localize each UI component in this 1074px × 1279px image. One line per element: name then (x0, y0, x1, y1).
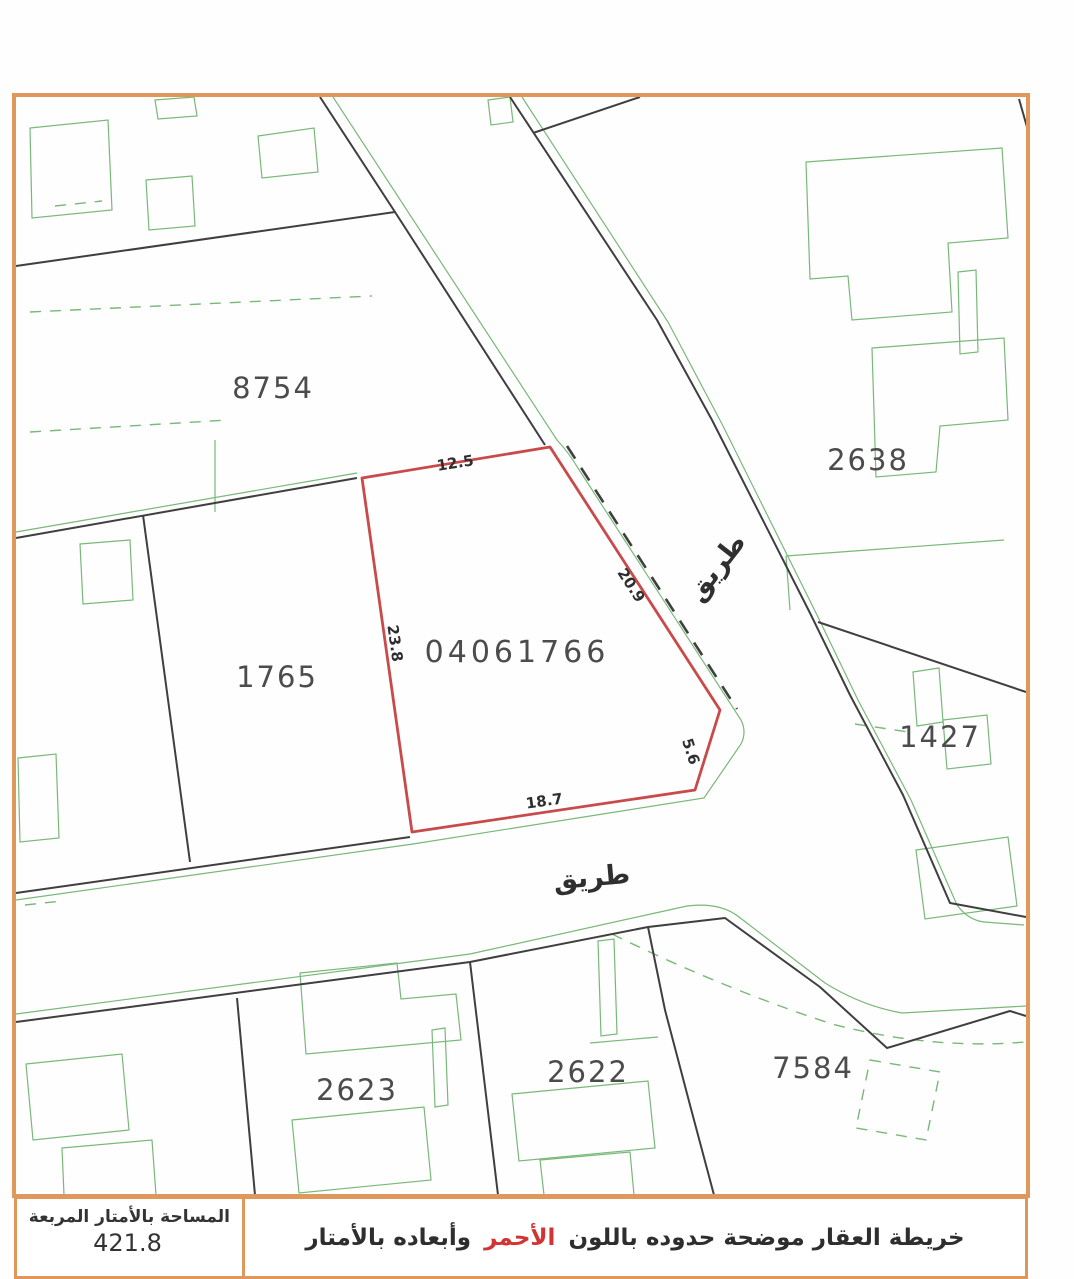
subject-parcel-number: 04061766 (425, 635, 610, 670)
area-cell: المساحة بالأمتار المربعة 421.8 (17, 1199, 245, 1276)
dashed-road-curve (612, 934, 1026, 1044)
parcel-label-2638: 2638 (827, 443, 909, 477)
dimension-labels: 12.5 20.9 23.8 5.6 18.7 (383, 451, 703, 812)
caption-cell: خريطة العقار موضحة حدوده باللون الأحمر و… (245, 1199, 1025, 1276)
block-8754-north-boundary (16, 212, 395, 266)
boundary-2622-7584 (648, 927, 714, 1195)
dimension-label-north: 12.5 (436, 451, 475, 475)
parcel-label-1427: 1427 (899, 720, 981, 754)
boundary-2623-2622 (470, 962, 498, 1195)
road-edge-south-horizontal (16, 918, 1026, 1048)
road-edge-north-horizontal (16, 837, 410, 893)
caption-text-red: الأحمر (484, 1225, 555, 1251)
road-label-horizontal: طريق (552, 859, 631, 897)
area-label: المساحة بالأمتار المربعة (25, 1207, 230, 1227)
parcel-labels: 8754 2638 1765 1427 2623 2622 7584 04061… (232, 371, 981, 1107)
road-label-vertical: طريق (681, 527, 753, 607)
parcel-label-7584: 7584 (772, 1051, 854, 1085)
map-canvas: 8754 2638 1765 1427 2623 2622 7584 04061… (0, 0, 1074, 1279)
block-1765-west-boundary (143, 515, 190, 862)
dimension-label-northeast: 20.9 (614, 565, 649, 606)
road-inner-edge-west (16, 97, 744, 900)
cadastral-map-sheet: 8754 2638 1765 1427 2623 2622 7584 04061… (0, 0, 1074, 1279)
block-2638-nw-corner (533, 97, 640, 133)
block-2623-west-boundary (237, 998, 255, 1195)
title-block: المساحة بالأمتار المربعة 421.8 خريطة الع… (14, 1196, 1028, 1279)
parcel-label-8754: 8754 (232, 371, 314, 405)
dimension-label-southeast: 5.6 (678, 736, 703, 767)
caption-text-before: خريطة العقار موضحة حدوده باللون (568, 1225, 964, 1251)
dashed-survey-lines (25, 201, 1026, 1140)
area-value: 421.8 (25, 1229, 230, 1257)
map-caption: خريطة العقار موضحة حدوده باللون الأحمر و… (305, 1225, 964, 1251)
parcel-label-2622: 2622 (547, 1055, 629, 1089)
road-edge-west (320, 97, 545, 445)
caption-text-after: وأبعاده بالأمتار (305, 1225, 471, 1251)
parcel-label-1765: 1765 (236, 660, 318, 694)
road-inner-edge-south (16, 905, 1026, 1014)
dashed-building-7584 (856, 1060, 940, 1140)
block-1765-north-boundary (16, 478, 357, 538)
road-inner-edge-east (522, 97, 1024, 925)
block-2638-ne-corner (1019, 99, 1027, 127)
parcel-label-2623: 2623 (316, 1073, 398, 1107)
